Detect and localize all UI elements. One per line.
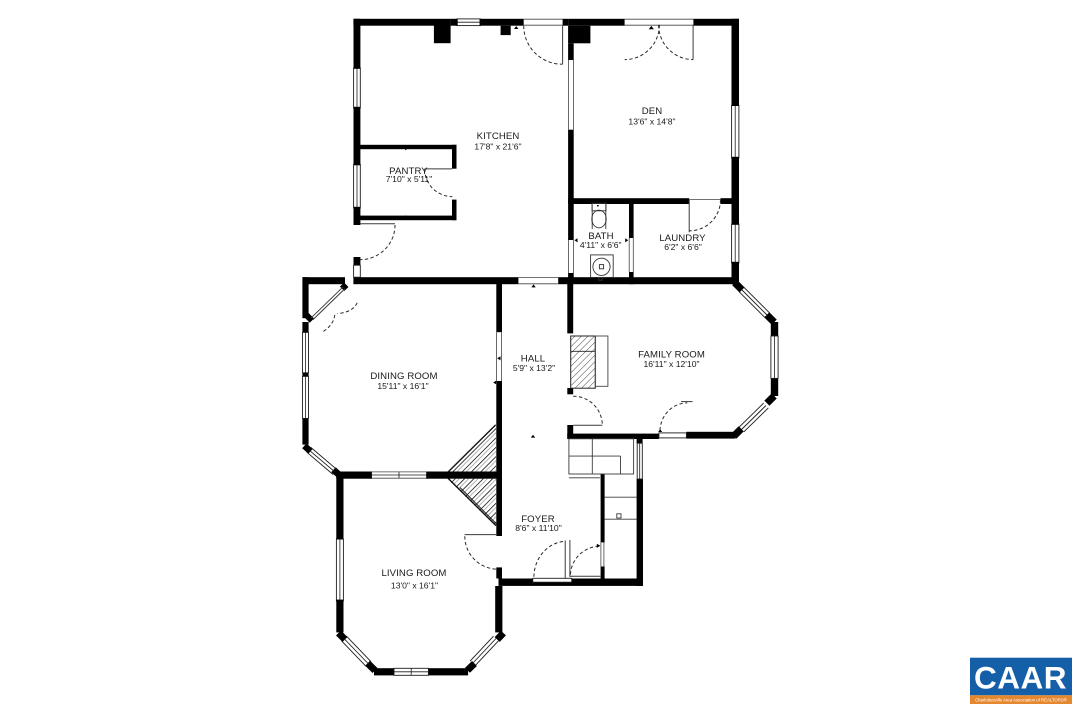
svg-text:DEN: DEN <box>642 106 663 117</box>
svg-text:7'10" x 5'11": 7'10" x 5'11" <box>386 174 433 184</box>
svg-text:13'6" x 14'8": 13'6" x 14'8" <box>628 116 675 126</box>
svg-text:5'9" x 13'2": 5'9" x 13'2" <box>513 363 555 373</box>
svg-text:6'2" x 6'6": 6'2" x 6'6" <box>664 242 702 252</box>
svg-text:17'8" x 21'6": 17'8" x 21'6" <box>474 142 521 152</box>
svg-text:CAAR: CAAR <box>974 660 1067 696</box>
svg-text:15'11" x 16'1": 15'11" x 16'1" <box>377 381 428 391</box>
svg-text:16'11" x 12'10": 16'11" x 12'10" <box>643 359 699 369</box>
svg-text:KITCHEN: KITCHEN <box>477 131 520 142</box>
svg-text:8'6" x 11'10": 8'6" x 11'10" <box>515 523 562 533</box>
svg-text:4'11" x 6'6": 4'11" x 6'6" <box>580 240 622 250</box>
svg-text:13'0" x 16'1": 13'0" x 16'1" <box>391 580 438 590</box>
svg-text:Charlottesville Area Associati: Charlottesville Area Association of REAL… <box>975 698 1068 703</box>
svg-text:LIVING ROOM: LIVING ROOM <box>381 568 446 579</box>
